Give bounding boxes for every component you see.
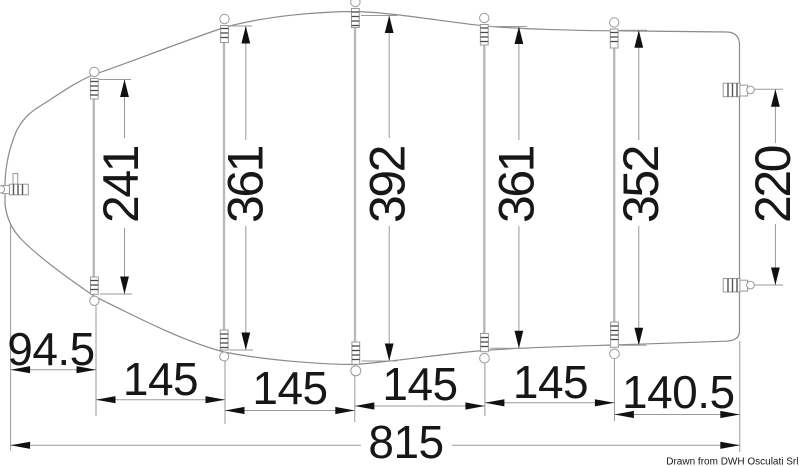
svg-text:815: 815 [368, 416, 443, 466]
svg-text:145: 145 [252, 362, 327, 414]
svg-text:145: 145 [123, 353, 198, 405]
svg-text:361: 361 [218, 146, 274, 223]
svg-text:241: 241 [93, 146, 149, 223]
svg-text:392: 392 [359, 146, 415, 223]
svg-text:140.5: 140.5 [622, 366, 735, 418]
svg-text:220: 220 [745, 146, 800, 223]
svg-text:145: 145 [382, 358, 457, 410]
svg-text:145: 145 [513, 356, 588, 408]
svg-text:94.5: 94.5 [7, 323, 95, 375]
svg-text:361: 361 [489, 146, 545, 223]
svg-text:352: 352 [613, 146, 669, 223]
svg-text:Drawn from DWH Osculati Srl: Drawn from DWH Osculati Srl [666, 457, 798, 466]
